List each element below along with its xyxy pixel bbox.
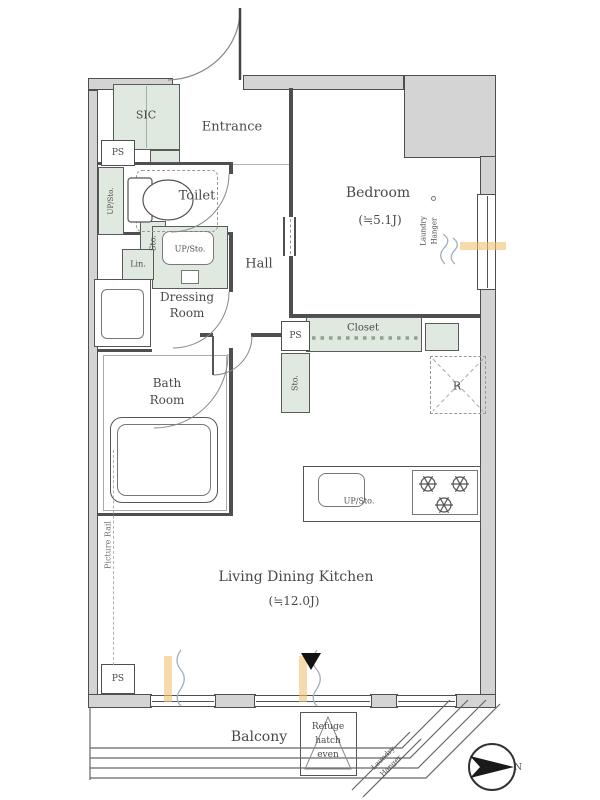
- room-label-ldk: Living Dining Kitchen: [219, 569, 374, 585]
- wall-segment: [229, 235, 233, 292]
- ps-label: PS: [112, 148, 124, 158]
- wall-segment: [214, 694, 256, 708]
- shoe-closet-ext: [150, 150, 180, 163]
- room-label-ldk-size: (≒12.0J): [269, 594, 320, 608]
- room-label-dressing-2: Room: [170, 306, 205, 320]
- upper-storage-label: UP/Sto.: [175, 245, 206, 254]
- closet-ext: [425, 323, 459, 351]
- room-label-bath-2: Room: [150, 393, 185, 407]
- balcony-window: [254, 695, 372, 707]
- floor-plan: PS PS PS: [0, 0, 600, 800]
- room-label-hall: Hall: [245, 257, 272, 272]
- entrance-step-line: [233, 164, 289, 165]
- storage-label: Sto.: [291, 375, 300, 391]
- sliding-door: [283, 217, 296, 256]
- wall-segment: [370, 694, 398, 708]
- laundry-hanger-line1: Laundry: [419, 216, 430, 246]
- upper-storage-label: UP/Sto.: [344, 497, 375, 506]
- wall-segment: [289, 256, 293, 318]
- compass: [468, 743, 516, 791]
- upper-storage-label: UP/Sto.: [107, 188, 115, 215]
- wall-corner-block: [404, 75, 496, 158]
- wall-segment: [455, 694, 496, 708]
- pipe-shaft: PS: [101, 664, 135, 694]
- storage-label: Sto.: [149, 235, 158, 251]
- ps-label: PS: [112, 674, 124, 684]
- refrigerator-label: R: [453, 380, 461, 393]
- wall-segment: [480, 288, 496, 708]
- wall-segment: [251, 333, 282, 337]
- pipe-shaft: PS: [281, 321, 310, 351]
- window-accent: [299, 656, 307, 702]
- wall-segment: [289, 88, 293, 217]
- wall-segment: [88, 694, 152, 708]
- stove: [412, 470, 478, 515]
- wall-segment: [229, 349, 233, 516]
- laundry-hanger-line2: Hanger: [429, 216, 440, 246]
- wall-segment: [243, 75, 404, 90]
- wall-segment: [98, 513, 233, 516]
- laundry-hanger-label: Laundry Hanger: [419, 216, 440, 246]
- entrance-door-arc: [168, 10, 240, 80]
- refuge-hatch-line1: Refuge: [312, 722, 344, 732]
- room-label-bath-1: Bath: [153, 376, 182, 390]
- window-accent: [164, 656, 172, 702]
- refuge-hatch-line2: hatch: [315, 736, 341, 746]
- pipe-shaft: PS: [101, 140, 135, 166]
- refuge-hatch-line3: even: [317, 750, 339, 760]
- room-label-balcony: Balcony: [231, 729, 287, 745]
- linen-label: Lin.: [130, 260, 146, 269]
- compass-north-label: N: [514, 763, 522, 773]
- hanger-point-icon: [431, 196, 436, 201]
- washing-machine-drum: [101, 289, 144, 339]
- wall-segment: [200, 333, 213, 337]
- wall-segment: [480, 156, 496, 196]
- bathtub-inner: [117, 424, 211, 496]
- ps-label: PS: [289, 331, 301, 341]
- room-label-entrance: Entrance: [202, 120, 262, 135]
- picture-rail-label: Picture Rail: [104, 521, 113, 569]
- window-accent: [460, 242, 506, 250]
- room-label-bedroom: Bedroom: [346, 185, 410, 201]
- wall-segment: [88, 90, 98, 708]
- wall-segment: [98, 349, 152, 352]
- picture-rail-line: [113, 450, 114, 665]
- balcony-railing: [90, 700, 500, 780]
- washbasin-faucet: [181, 270, 199, 284]
- laundry-hanger-label: Laundry Hanger: [369, 744, 405, 780]
- room-label-sic: SIC: [136, 109, 156, 122]
- room-label-bedroom-size: (≒5.1J): [358, 213, 401, 227]
- balcony-window: [150, 695, 216, 707]
- balcony-window: [396, 695, 457, 707]
- room-label-dressing-1: Dressing: [160, 290, 214, 304]
- closet-label: Closet: [347, 323, 379, 334]
- room-label-toilet: Toilet: [179, 189, 216, 204]
